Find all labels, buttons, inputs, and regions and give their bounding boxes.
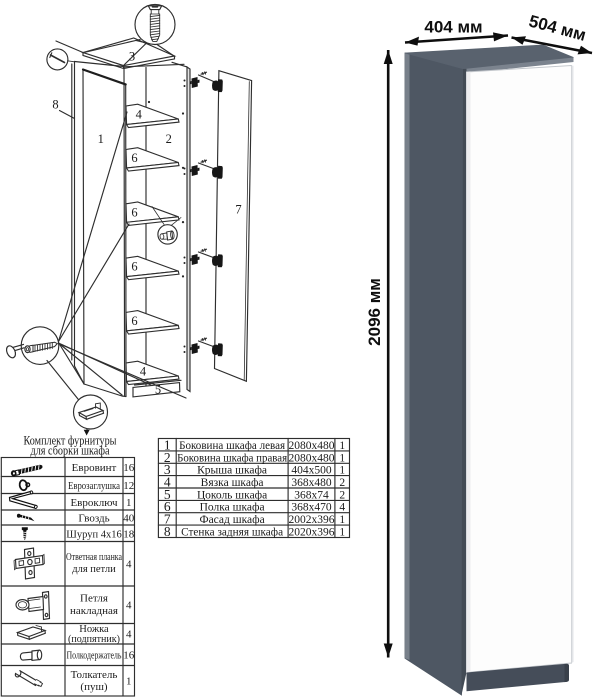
svg-text:Гвоздь: Гвоздь bbox=[78, 513, 109, 525]
svg-text:(пуш): (пуш) bbox=[80, 681, 108, 693]
svg-text:7: 7 bbox=[235, 203, 241, 217]
svg-text:Полкодержатель: Полкодержатель bbox=[67, 650, 122, 662]
svg-text:8: 8 bbox=[52, 98, 58, 112]
svg-text:Вязка шкафа: Вязка шкафа bbox=[201, 477, 264, 489]
svg-text:Полка шкафа: Полка шкафа bbox=[200, 502, 265, 514]
svg-text:Крыша шкафа: Крыша шкафа bbox=[197, 465, 267, 477]
svg-text:6: 6 bbox=[131, 151, 137, 165]
svg-text:2: 2 bbox=[339, 489, 345, 501]
svg-text:4: 4 bbox=[140, 365, 147, 379]
svg-text:2: 2 bbox=[166, 132, 172, 146]
svg-text:4: 4 bbox=[136, 108, 143, 122]
svg-text:Фасад шкафа: Фасад шкафа bbox=[199, 514, 264, 526]
svg-text:Евроключ: Евроключ bbox=[70, 497, 118, 509]
svg-text:4: 4 bbox=[126, 559, 132, 571]
svg-text:6: 6 bbox=[131, 314, 137, 328]
svg-text:Ответная планка: Ответная планка bbox=[66, 552, 122, 563]
svg-text:Еврозаглушка: Еврозаглушка bbox=[68, 481, 120, 492]
svg-text:8: 8 bbox=[164, 524, 171, 539]
svg-text:16: 16 bbox=[123, 462, 135, 474]
svg-text:3: 3 bbox=[129, 50, 135, 64]
svg-text:368х470: 368х470 bbox=[291, 502, 332, 514]
svg-text:Евровинт: Евровинт bbox=[72, 462, 117, 474]
svg-text:404х500: 404х500 bbox=[291, 465, 332, 477]
svg-text:368х480: 368х480 bbox=[291, 477, 332, 489]
svg-text:для петли: для петли bbox=[72, 564, 116, 575]
svg-text:4: 4 bbox=[339, 502, 345, 514]
svg-text:2096 мм: 2096 мм bbox=[365, 278, 384, 346]
svg-text:Цоколь шкафа: Цоколь шкафа bbox=[197, 489, 267, 501]
svg-text:16: 16 bbox=[123, 650, 135, 662]
svg-text:404 мм: 404 мм bbox=[424, 18, 482, 37]
svg-text:Толкатель: Толкатель bbox=[71, 669, 118, 681]
svg-text:Шуруп 4х16: Шуруп 4х16 bbox=[66, 530, 121, 541]
svg-text:18: 18 bbox=[123, 529, 135, 541]
svg-text:12: 12 bbox=[123, 480, 134, 492]
svg-text:2020х396: 2020х396 bbox=[289, 527, 335, 539]
svg-text:4: 4 bbox=[126, 629, 132, 641]
svg-text:40: 40 bbox=[123, 513, 135, 525]
svg-text:накладная: накладная bbox=[70, 605, 118, 617]
svg-text:2080х480: 2080х480 bbox=[289, 452, 335, 464]
svg-text:Боковина шкафа левая: Боковина шкафа левая bbox=[179, 440, 286, 452]
svg-text:4: 4 bbox=[126, 600, 132, 612]
svg-text:1: 1 bbox=[339, 514, 345, 526]
svg-text:1: 1 bbox=[339, 465, 345, 477]
svg-text:1: 1 bbox=[339, 527, 345, 539]
svg-text:368х74: 368х74 bbox=[294, 489, 329, 501]
svg-text:1: 1 bbox=[339, 440, 345, 452]
svg-text:Боковина шкафа правая: Боковина шкафа правая bbox=[177, 452, 288, 464]
svg-text:Петля: Петля bbox=[80, 593, 108, 605]
svg-text:1: 1 bbox=[126, 676, 132, 688]
svg-text:2002х396: 2002х396 bbox=[289, 514, 335, 526]
svg-text:1: 1 bbox=[98, 132, 104, 146]
svg-text:(подпятник): (подпятник) bbox=[68, 634, 120, 645]
svg-text:Стенка задняя шкафа: Стенка задняя шкафа bbox=[181, 527, 283, 539]
svg-text:для сборки шкафа: для сборки шкафа bbox=[31, 443, 110, 458]
svg-text:6: 6 bbox=[131, 205, 137, 219]
svg-text:1: 1 bbox=[339, 452, 345, 464]
svg-text:6: 6 bbox=[131, 260, 137, 274]
svg-text:2: 2 bbox=[339, 477, 345, 489]
svg-text:1: 1 bbox=[126, 497, 132, 509]
svg-text:2080х480: 2080х480 bbox=[289, 440, 335, 452]
